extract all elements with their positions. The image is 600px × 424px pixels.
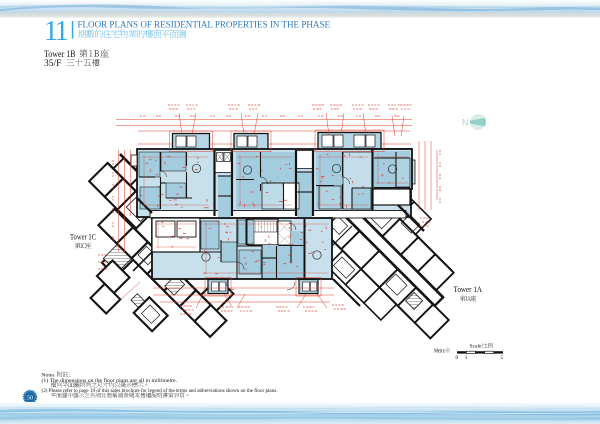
svg-text:1: 1 <box>465 355 468 361</box>
svg-text:FLOOR PLANS OF RESIDENTIAL PRO: FLOOR PLANS OF RESIDENTIAL PROPERTIES IN… <box>78 21 331 31</box>
svg-text:(1) The dimensions on the floo: (1) The dimensions on the floor plans ar… <box>42 377 178 384</box>
svg-text:(2) Please refer to page 19 of: (2) Please refer to page 19 of this sale… <box>42 387 279 394</box>
svg-text:Tower 1A: Tower 1A <box>454 285 483 294</box>
svg-text:N: N <box>462 118 469 128</box>
svg-text:50: 50 <box>27 395 33 401</box>
svg-text:Scale: Scale <box>470 344 483 350</box>
svg-text:0: 0 <box>456 355 459 361</box>
svg-text:Tower 1C: Tower 1C <box>70 232 96 241</box>
svg-text:Metre: Metre <box>434 349 445 355</box>
svg-text:11: 11 <box>44 16 68 47</box>
svg-text:35/F: 35/F <box>44 58 62 68</box>
svg-text:5: 5 <box>501 355 504 361</box>
